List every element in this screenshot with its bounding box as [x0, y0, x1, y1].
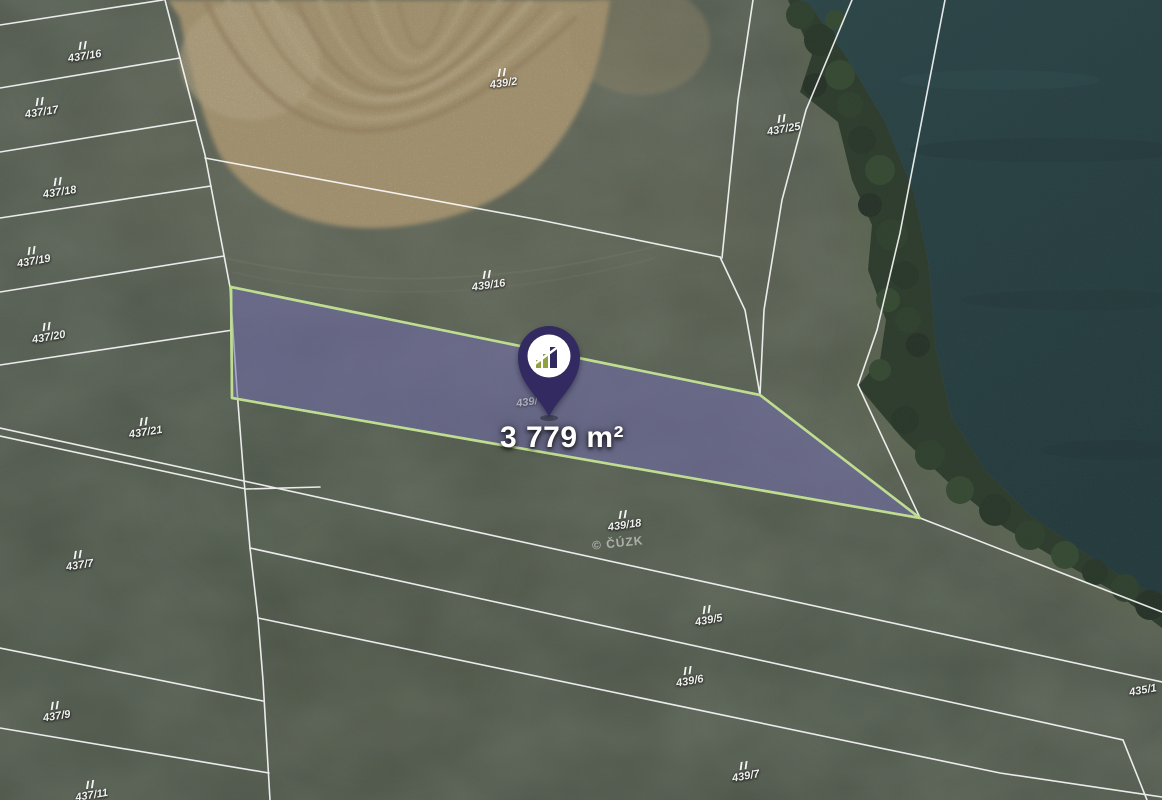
parcel-number: 439/7: [731, 769, 760, 785]
parcel-label: 439/16: [470, 268, 506, 293]
parcel-number: 437/11: [75, 788, 109, 800]
parcel-number: 437/21: [128, 425, 163, 441]
land-use-marker-icon: [54, 177, 62, 186]
parcel-number: 439/5: [694, 613, 723, 629]
parcel-number: 437/25: [766, 122, 801, 139]
land-use-marker-icon: [43, 322, 51, 331]
parcel-number: 437/7: [65, 558, 94, 573]
parcel-number: 437/19: [16, 254, 51, 271]
pin-inner-circle: [528, 335, 571, 378]
land-use-marker-icon: [498, 68, 506, 77]
parcel-label: 437/18: [41, 175, 78, 201]
land-use-marker-icon: [28, 246, 36, 255]
parcel-label: 437/17: [23, 95, 60, 121]
parcel-number: 437/16: [67, 49, 102, 65]
parcel-area-label: 3 779 m²: [462, 421, 662, 455]
parcel-label: 437/9: [41, 699, 71, 724]
land-use-marker-icon: [86, 780, 94, 789]
land-use-marker-icon: [740, 761, 748, 770]
land-use-marker-icon: [684, 666, 692, 675]
land-use-marker-icon: [74, 550, 82, 559]
satellite-map[interactable]: 437/16437/17437/18437/19437/20437/21437/…: [0, 0, 1162, 800]
land-use-marker-icon: [619, 510, 627, 519]
parcel-number: 439/18: [607, 518, 642, 534]
parcel-label: 439/18: [606, 508, 642, 533]
parcel-label: 437/7: [64, 548, 94, 573]
parcel-label: 437/20: [30, 320, 67, 347]
parcel-label: 439/6: [674, 664, 705, 689]
parcel-label: 439/5: [693, 603, 724, 628]
land-use-marker-icon: [778, 114, 786, 123]
parcel-number: 437/18: [42, 185, 77, 201]
parcel-number: 439/6: [675, 674, 704, 690]
parcel-number: 439/2: [489, 77, 518, 92]
parcel-label: 435/1: [1128, 683, 1157, 699]
parcel-number: 439/16: [471, 278, 506, 294]
land-use-marker-icon: [140, 417, 148, 426]
location-pin[interactable]: [505, 318, 595, 423]
land-use-marker-icon: [483, 270, 491, 279]
parcel-number: 437/17: [24, 105, 59, 121]
parcel-label: 439/7: [730, 759, 761, 784]
parcel-number: 435/1: [1128, 683, 1157, 699]
land-use-marker-icon: [36, 97, 44, 106]
parcel-label: 437/21: [127, 415, 164, 441]
land-use-marker-icon: [703, 605, 711, 614]
parcel-number: 437/9: [42, 709, 71, 724]
parcel-label: 437/25: [765, 112, 802, 139]
parcel-label: 437/16: [66, 39, 103, 65]
parcel-label: 437/11: [73, 778, 109, 800]
land-use-marker-icon: [51, 701, 59, 710]
parcel-number: 437/20: [31, 330, 66, 347]
land-use-marker-icon: [79, 41, 87, 50]
parcel-label: 439/2: [488, 67, 518, 92]
parcel-label: 437/19: [15, 244, 52, 271]
